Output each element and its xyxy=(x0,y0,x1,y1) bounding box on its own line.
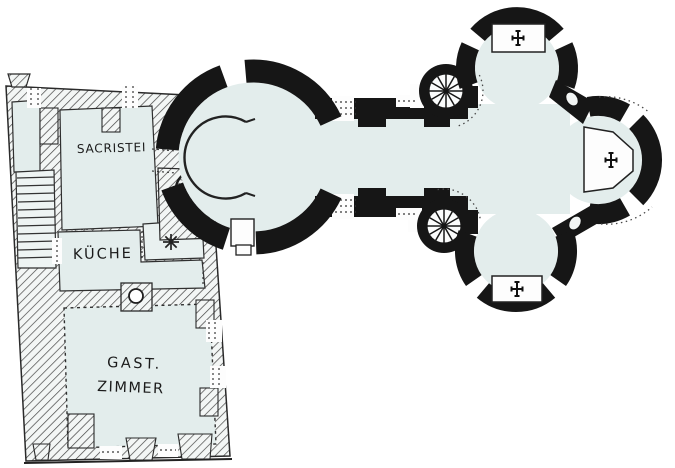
wall-pier xyxy=(200,388,218,416)
buttress xyxy=(126,438,156,460)
buttress xyxy=(178,434,212,459)
hearth-star-icon xyxy=(163,234,179,250)
sacristy-label: SACRISTEI xyxy=(77,140,147,156)
portal-step xyxy=(236,245,251,255)
oven-circle-icon xyxy=(129,289,143,303)
wall-pier xyxy=(102,108,120,132)
guest-room-label-line1: GAST. xyxy=(107,355,162,373)
wall-pier xyxy=(40,108,58,144)
wall-pier xyxy=(68,414,94,448)
entry-lobby xyxy=(12,100,40,172)
rotunda-portal xyxy=(231,219,254,246)
floor-plan-drawing: SACRISTEI KÜCHE GAST. ZIMMER xyxy=(0,0,675,468)
floor-plan-page: SACRISTEI KÜCHE GAST. ZIMMER xyxy=(0,0,675,468)
buttress xyxy=(33,444,50,460)
guest-room-label-line2: ZIMMER xyxy=(97,379,165,397)
kitchen-label: KÜCHE xyxy=(73,244,133,263)
buttress xyxy=(8,74,30,87)
